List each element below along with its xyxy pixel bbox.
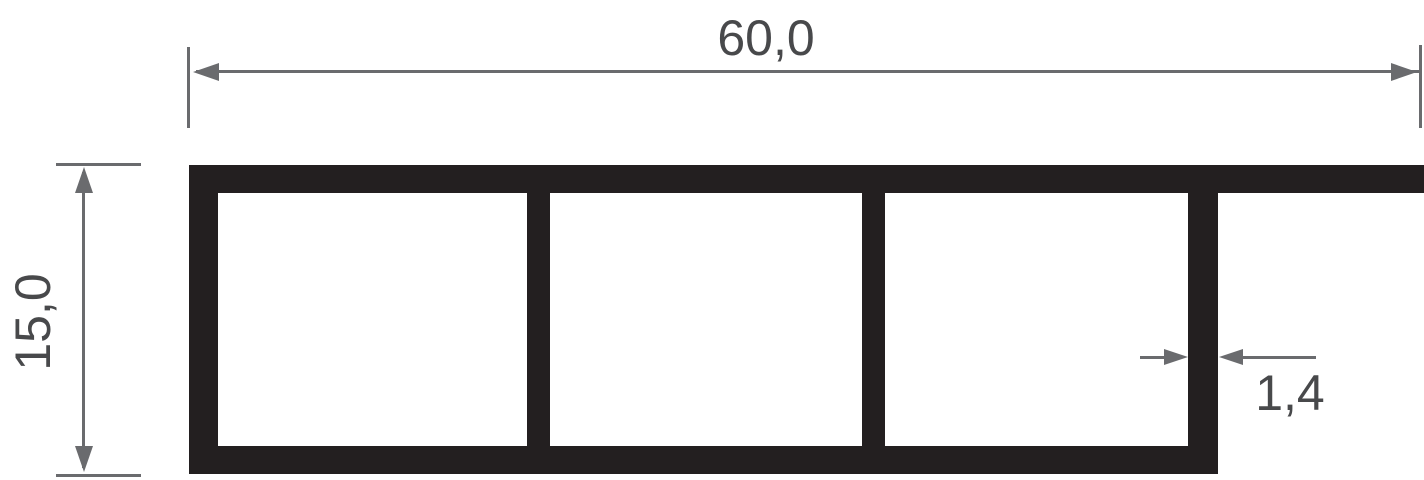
width-dimension-line [196,70,1420,73]
height-arrowhead-bottom [75,446,93,472]
width-extension-line-right [1419,45,1422,128]
thickness-arrowhead-inner [1164,349,1188,365]
thickness-arrowhead-outer [1219,349,1243,365]
height-tick-top [56,163,141,166]
profile-right-wall [1188,165,1218,474]
profile-left-wall [189,165,218,474]
thickness-dimension-label: 1,4 [1240,368,1340,418]
height-dimension-label: 15,0 [8,242,58,402]
height-arrowhead-top [75,167,93,193]
width-arrowhead-right [1391,63,1417,81]
height-tick-bottom [56,474,141,477]
profile-bottom-wall [189,446,1218,474]
height-dimension-line [82,172,85,468]
profile-inner-wall-2 [862,190,885,446]
width-dimension-label: 60,0 [666,13,866,63]
technical-drawing-canvas: 60,0 15,0 1,4 [0,0,1424,480]
profile-inner-wall-1 [527,190,550,446]
width-extension-line-left [187,47,190,128]
thickness-leader-line-left [1140,356,1166,359]
thickness-leader-line-right [1241,356,1316,359]
profile-top-wall-and-flange [189,165,1424,193]
width-arrowhead-left [193,63,219,81]
